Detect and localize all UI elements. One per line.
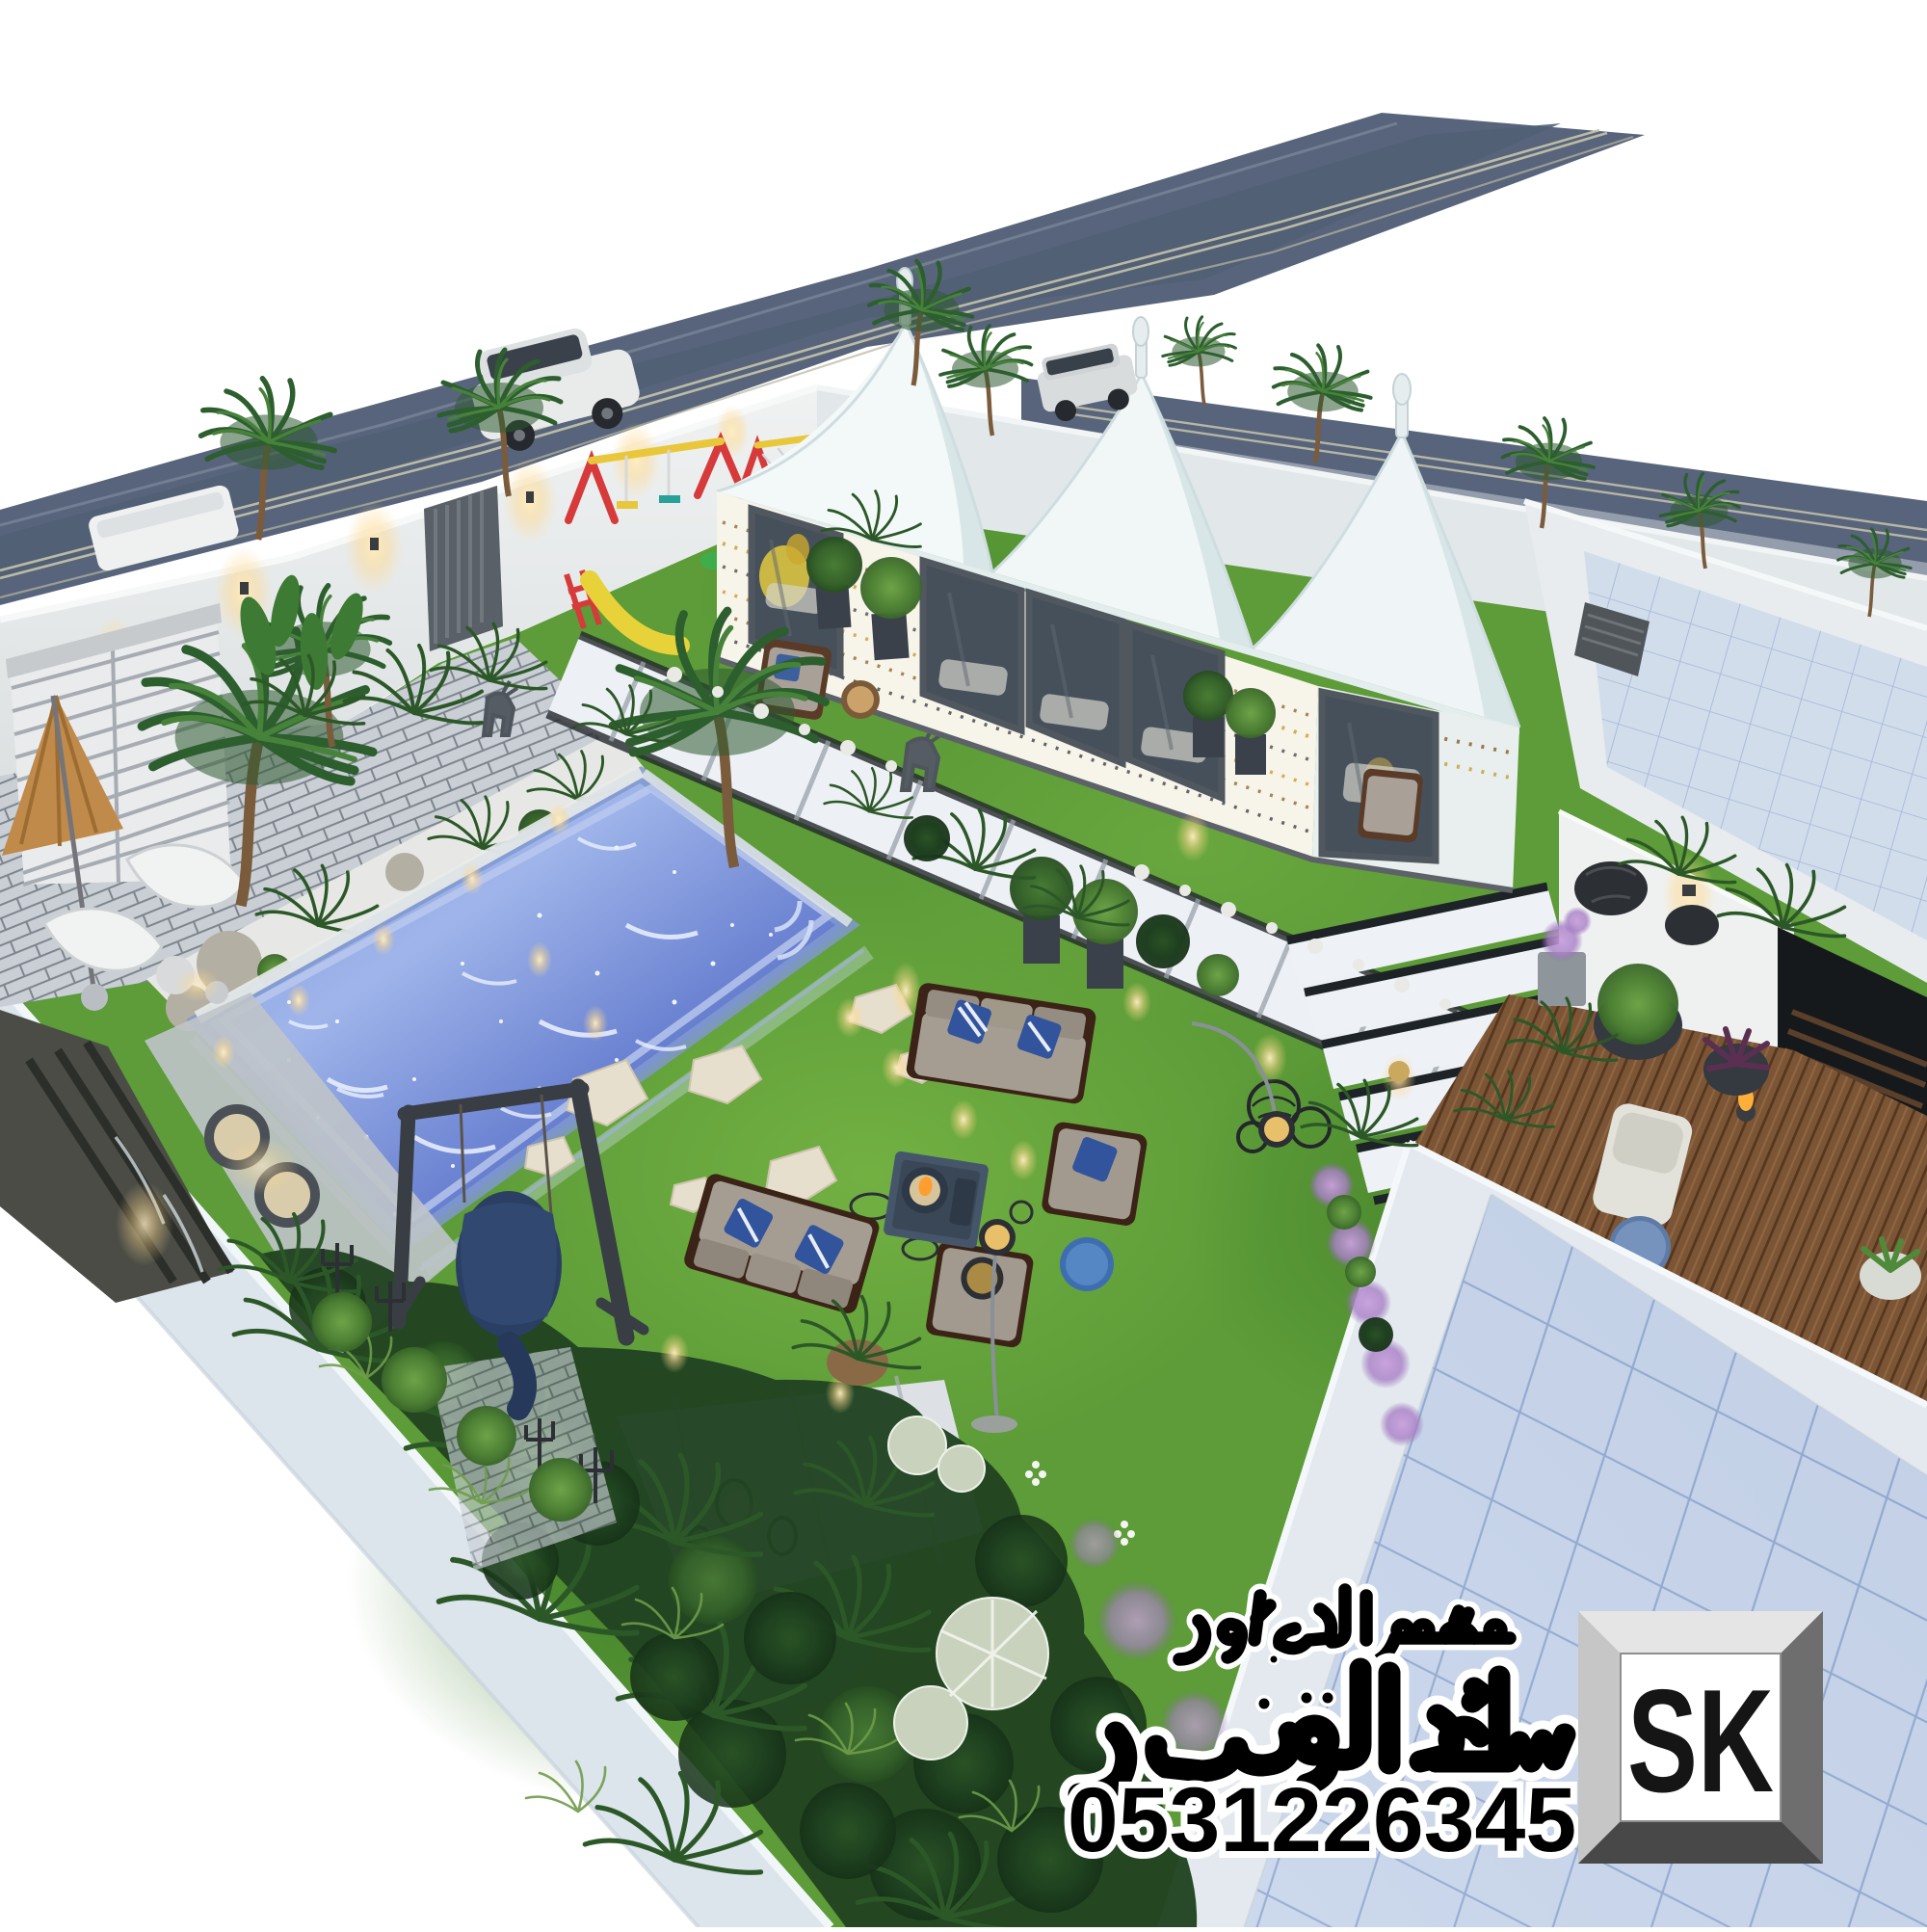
svg-text:0531226345: 0531226345: [1068, 1769, 1576, 1871]
svg-text:SK: SK: [1627, 1659, 1774, 1823]
